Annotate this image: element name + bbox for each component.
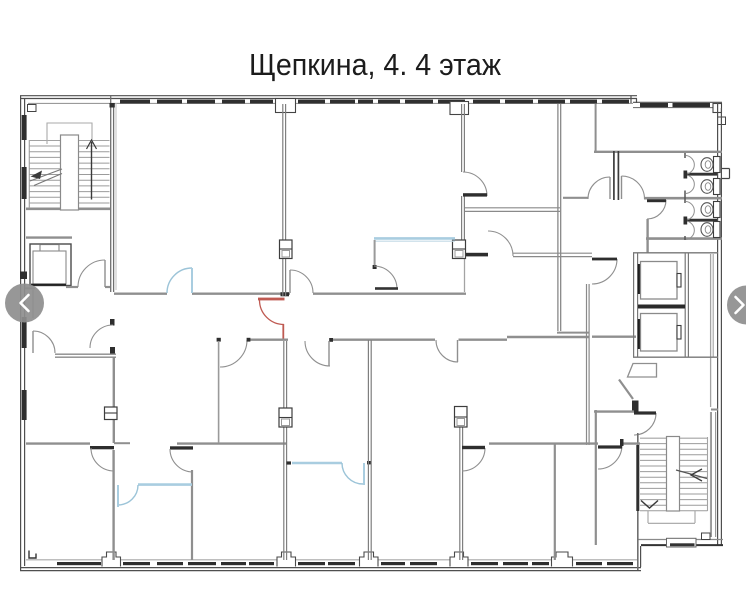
svg-text:Щепкина, 4. 4 этаж: Щепкина, 4. 4 этаж <box>249 47 501 82</box>
